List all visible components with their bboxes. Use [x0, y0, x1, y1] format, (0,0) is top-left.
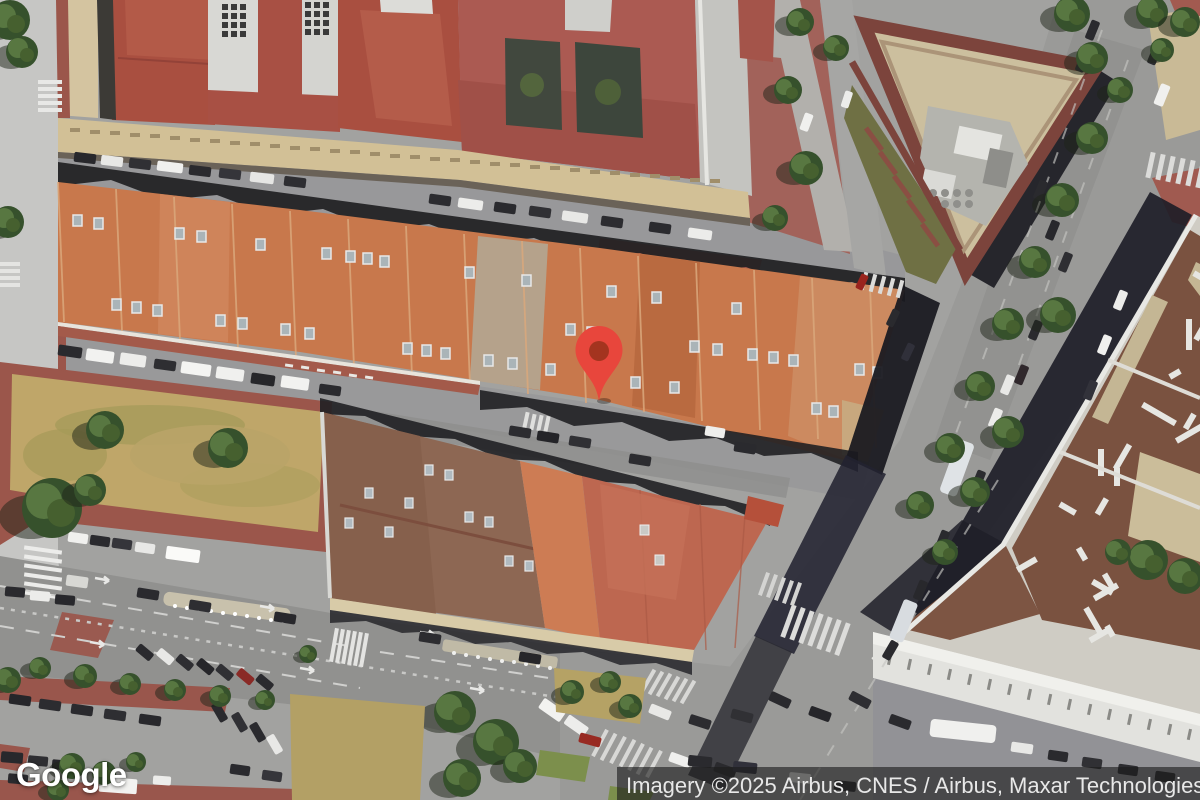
svg-text:Imagery ©2025 Airbus, CNES / A: Imagery ©2025 Airbus, CNES / Airbus, Max…: [626, 773, 1200, 798]
svg-text:Google: Google: [16, 756, 127, 793]
